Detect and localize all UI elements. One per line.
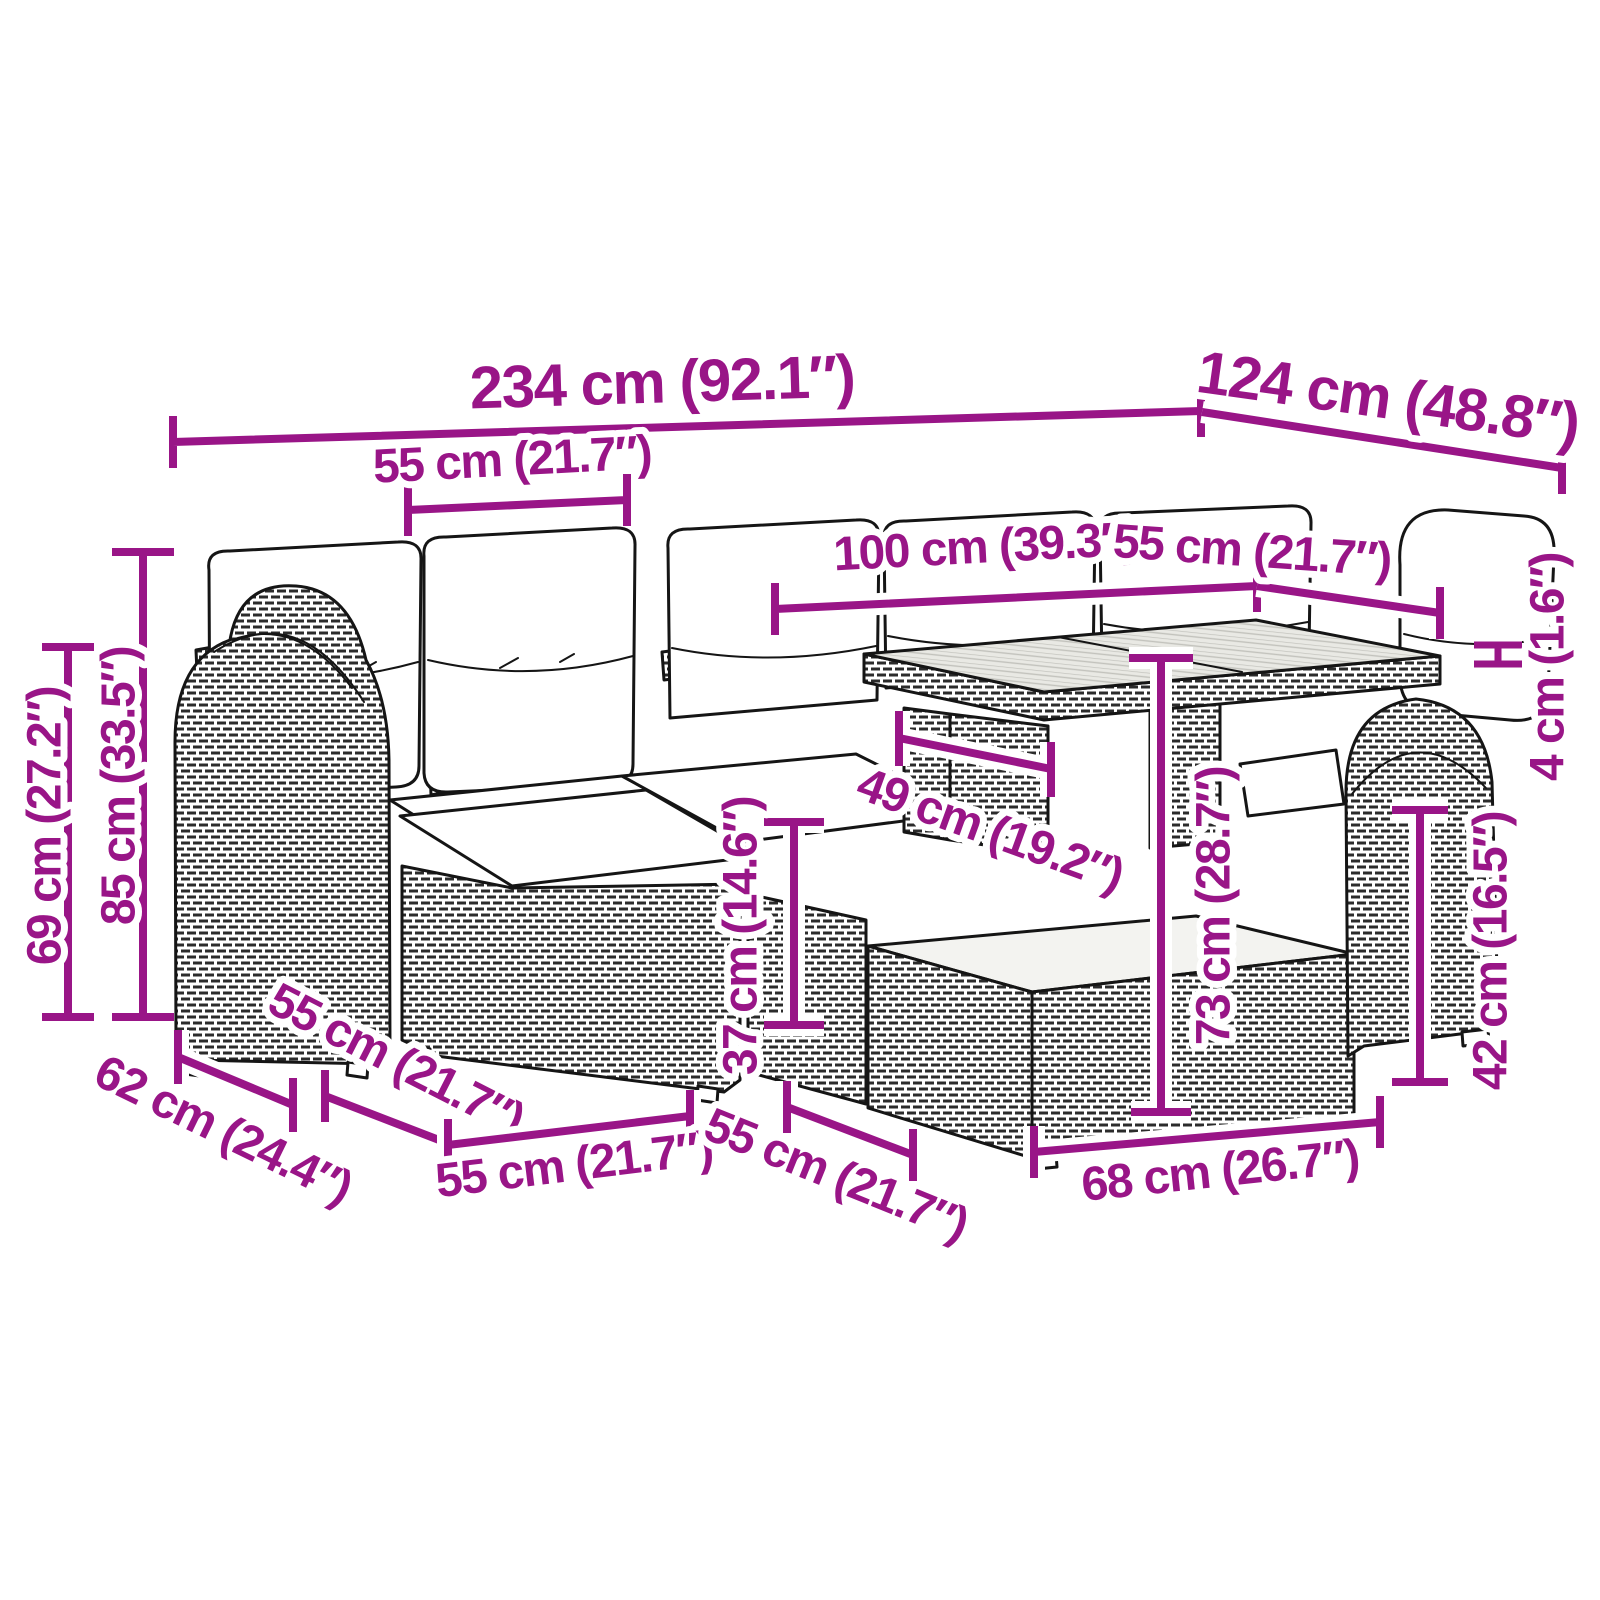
dim-label-arm-height: 69 cm (27.2″) [19, 687, 72, 965]
dim-label-back-height: 85 cm (33.5″) [93, 647, 146, 925]
dim-label-tabletop-thickness: 4 cm (1.6″) [1522, 553, 1575, 781]
dim-overall-width: 234 cm (92.1″) [173, 342, 1201, 468]
dim-label-box-height: 42 cm (16.5″) [1465, 812, 1518, 1090]
dim-back-height: 85 cm (33.5″) [93, 552, 175, 1017]
dim-overall-depth: 124 cm (48.8″) [1193, 338, 1583, 494]
dim-seat-width-top: 55 cm (21.7″) [372, 426, 653, 536]
dim-arm-height: 69 cm (27.2″) [19, 647, 95, 1017]
diagram-canvas: 234 cm (92.1″) 124 cm (48.8″) 55 cm (21.… [0, 0, 1600, 1600]
dim-label-overall-width: 234 cm (92.1″) [469, 342, 856, 421]
dim-label-ottoman-height: 37 cm (14.6″) [715, 797, 768, 1075]
dimension-diagram: 234 cm (92.1″) 124 cm (48.8″) 55 cm (21.… [0, 0, 1600, 1600]
ottoman [400, 790, 760, 1103]
back-pillow [424, 528, 635, 792]
dim-label-table-height: 73 cm (28.7″) [1188, 767, 1241, 1045]
